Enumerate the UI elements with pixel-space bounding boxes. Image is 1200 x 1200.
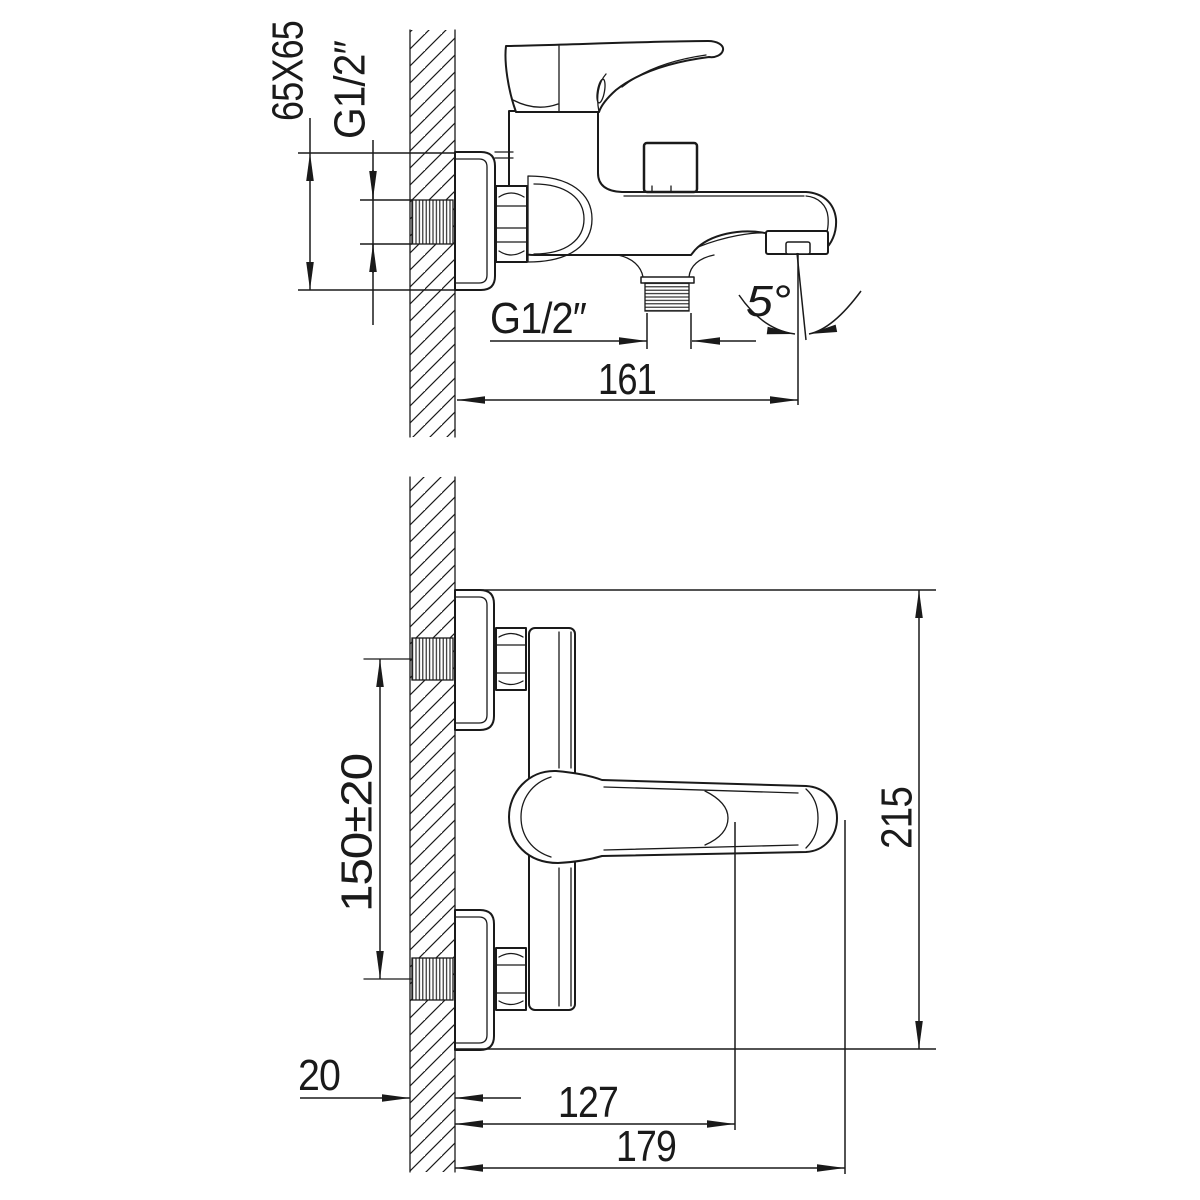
handle-front [509,771,837,863]
hex-nut-side [496,186,527,262]
wall-section-front-view [410,477,455,1172]
dim-label-5deg: 5° [746,277,790,326]
dim-label-215: 215 [873,787,922,849]
dim-label-outlet-thread: G1/2″ [490,294,586,343]
lower-escutcheon-front [455,910,494,1050]
faucet-dimensional-drawing: 65X65 G1/2″ G1/2″ 161 5° [0,0,1200,1200]
aerator [766,231,828,254]
diverter-knob [644,143,697,192]
dim-label-150: 150±20 [333,754,382,912]
upper-escutcheon-front [455,590,494,730]
dim-label-127: 127 [558,1078,618,1127]
shower-outlet-thread [645,283,689,311]
upper-hex-nut-front [496,628,526,690]
dim-label-inlet-thread: G1/2″ [326,41,375,139]
escutcheon-side [455,152,495,290]
lower-hex-nut-front [496,948,526,1010]
dim-label-20: 20 [298,1051,340,1100]
dim-label-161: 161 [598,355,656,404]
dim-label-65x65: 65X65 [264,21,313,121]
technical-drawing-page: 65X65 G1/2″ G1/2″ 161 5° [0,0,1200,1200]
dim-label-179: 179 [616,1122,676,1171]
wall-supply-thread-side [412,200,453,244]
